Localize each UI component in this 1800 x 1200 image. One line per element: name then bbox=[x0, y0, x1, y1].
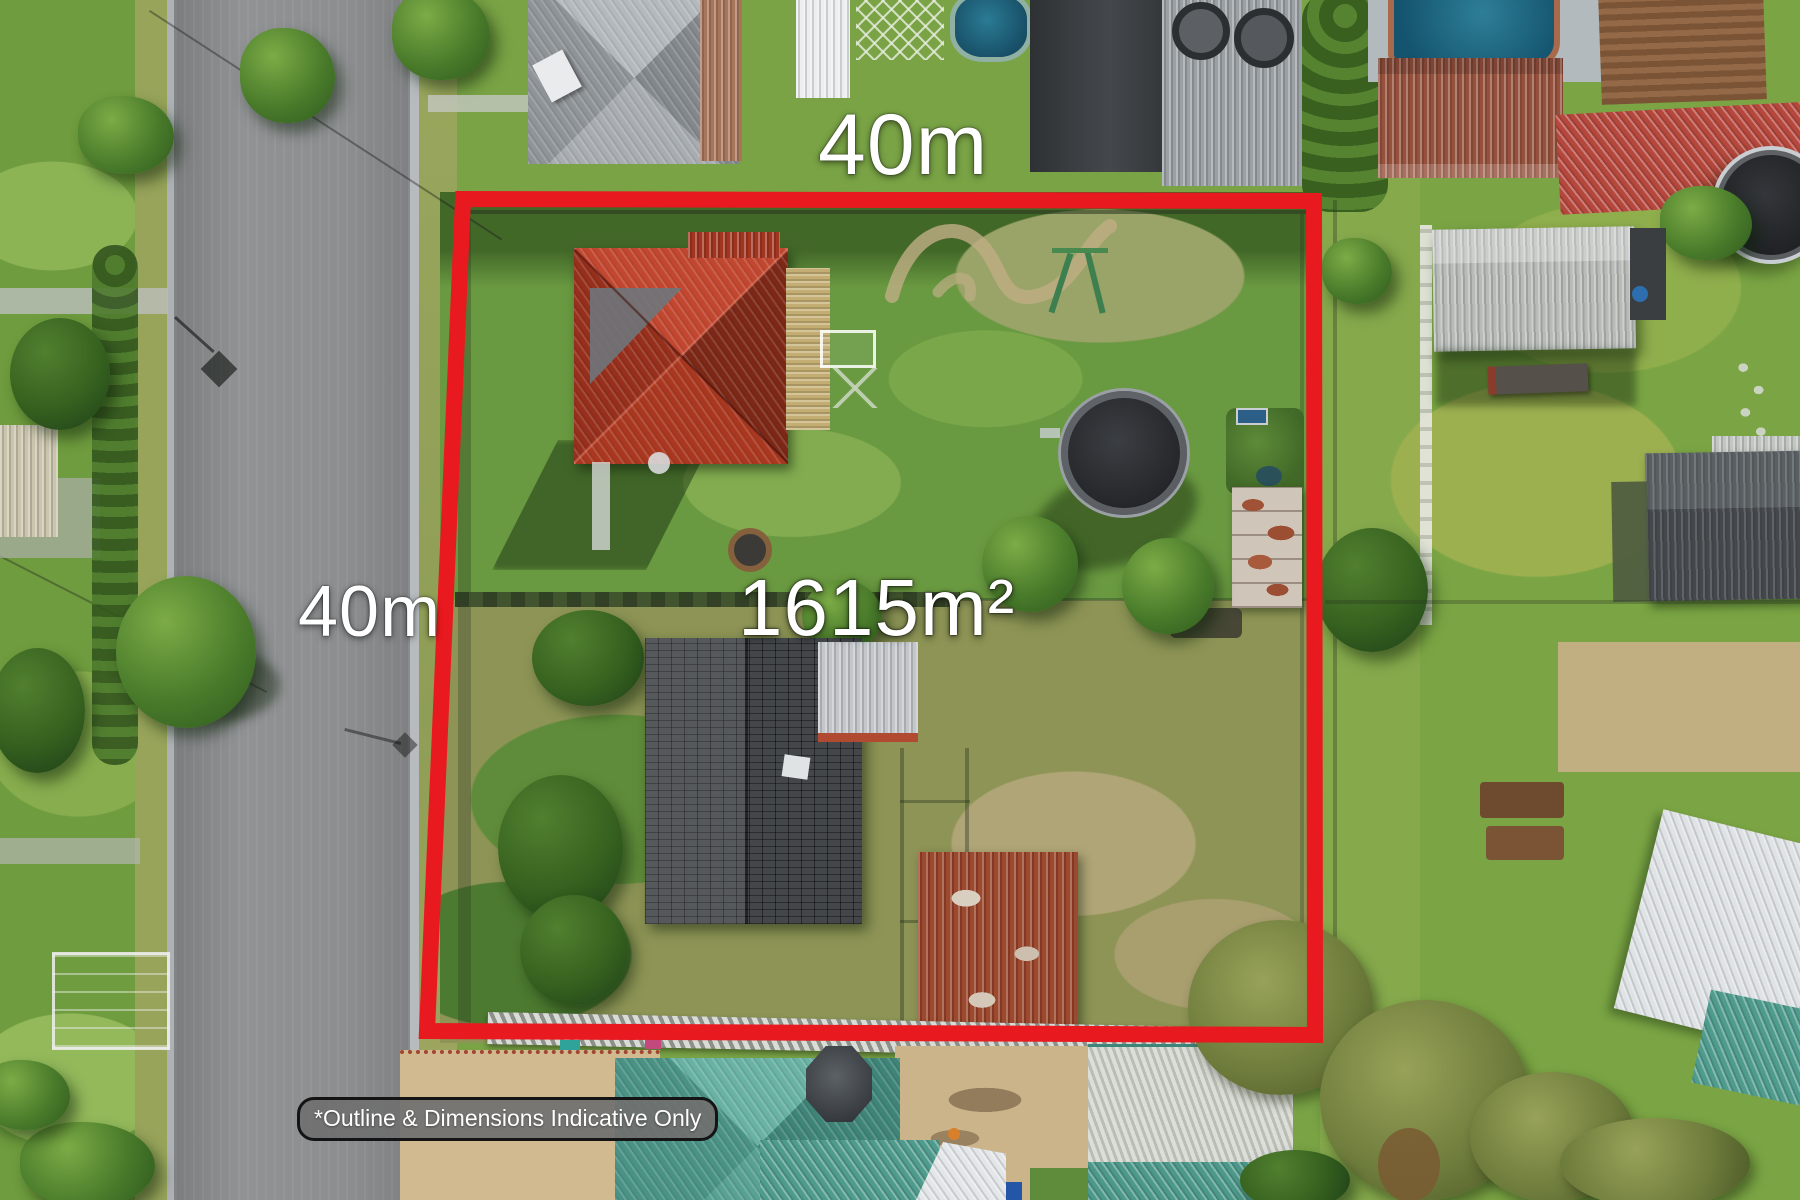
disclaimer-text: *Outline & Dimensions Indicative Only bbox=[314, 1105, 701, 1132]
aerial-photo: 40m 40m 1615m² *Outline & Dimensions Ind… bbox=[0, 0, 1800, 1200]
left-depth-label: 40m bbox=[298, 576, 441, 648]
disclaimer-badge: *Outline & Dimensions Indicative Only bbox=[297, 1097, 718, 1141]
top-width-label: 40m bbox=[818, 102, 988, 188]
area-label: 1615m² bbox=[738, 568, 1015, 648]
